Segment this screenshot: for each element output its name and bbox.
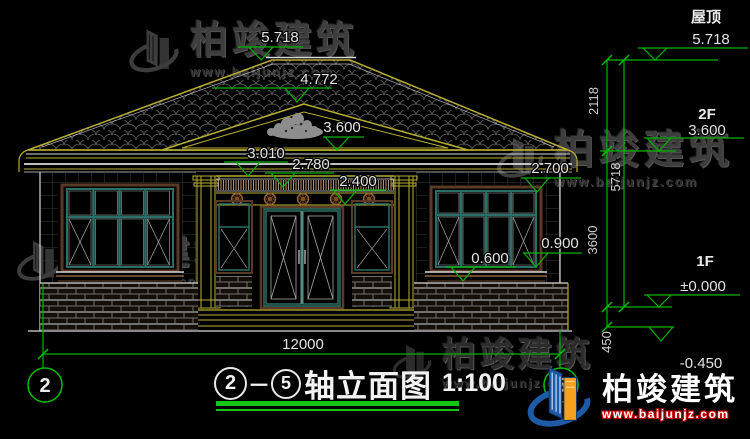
- svg-text:5.718: 5.718: [261, 29, 299, 46]
- floor-level-value: 3.600: [688, 122, 726, 139]
- brand-logo-icon: [520, 360, 598, 434]
- porch-brick-left: [216, 276, 252, 307]
- floor-level-roof: 屋顶 5.718: [607, 9, 748, 60]
- svg-text:0.900: 0.900: [541, 235, 579, 252]
- svg-text:2.700: 2.700: [531, 160, 569, 177]
- title-axis-end: 5: [281, 373, 291, 394]
- right-dimension-chains: 2118 5718 3600 450: [585, 55, 629, 353]
- axis-bubble-label: 2: [39, 375, 50, 397]
- axis-bubble-2: 2: [28, 368, 62, 402]
- drawing-title: 2 － 5 轴立面图 1:100: [214, 361, 506, 406]
- floor-label: 1F: [696, 253, 714, 270]
- title-axis-start-bubble: 2: [214, 367, 247, 400]
- roof-level-value: 5.718: [692, 31, 730, 48]
- floor-level-1f: 1F ±0.000: [607, 253, 740, 307]
- svg-text:3.600: 3.600: [323, 119, 361, 136]
- title-underline-thin: [216, 409, 459, 411]
- svg-text:2.400: 2.400: [339, 173, 377, 190]
- dim-3600: 3600: [585, 226, 600, 255]
- title-axis-end-bubble: 5: [271, 369, 301, 399]
- porch-brick-right: [352, 276, 392, 307]
- title-dash: －: [248, 368, 270, 400]
- svg-text:2.780: 2.780: [292, 156, 330, 173]
- brand-logo-colored: 柏竣建筑 www.baijunjz.com: [520, 360, 738, 434]
- dim-5718: 5718: [608, 163, 623, 192]
- level-mark-5718: 5.718: [238, 29, 303, 60]
- entrance-porch: [190, 172, 421, 326]
- svg-text:0.600: 0.600: [471, 250, 509, 267]
- watermark-url-text: www.baijunjz.com: [602, 408, 738, 420]
- svg-text:4.772: 4.772: [300, 71, 338, 88]
- cad-viewport: 柏竣建筑 www.baijunjz.com 柏竣建筑 www.baijunjz.…: [0, 0, 750, 439]
- watermark-brand-text: 柏竣建筑: [602, 374, 738, 405]
- svg-text:3.010: 3.010: [247, 145, 285, 162]
- dim-450: 450: [599, 331, 614, 353]
- floor-label: 2F: [698, 106, 716, 123]
- right-window: [425, 185, 547, 283]
- dim-total-width: 12000: [282, 336, 324, 353]
- title-name: 轴立面图: [304, 361, 432, 406]
- roof-label: 屋顶: [691, 9, 721, 26]
- title-axis-start: 2: [225, 372, 236, 395]
- floor-level-value: ±0.000: [680, 278, 726, 295]
- title-underline-thick: [216, 401, 459, 406]
- left-window: [56, 183, 184, 283]
- porch-steps: [190, 310, 421, 326]
- floor-level-2f: 2F 3.600: [600, 106, 744, 151]
- title-scale: 1:100: [442, 369, 506, 398]
- dim-2118: 2118: [586, 87, 601, 115]
